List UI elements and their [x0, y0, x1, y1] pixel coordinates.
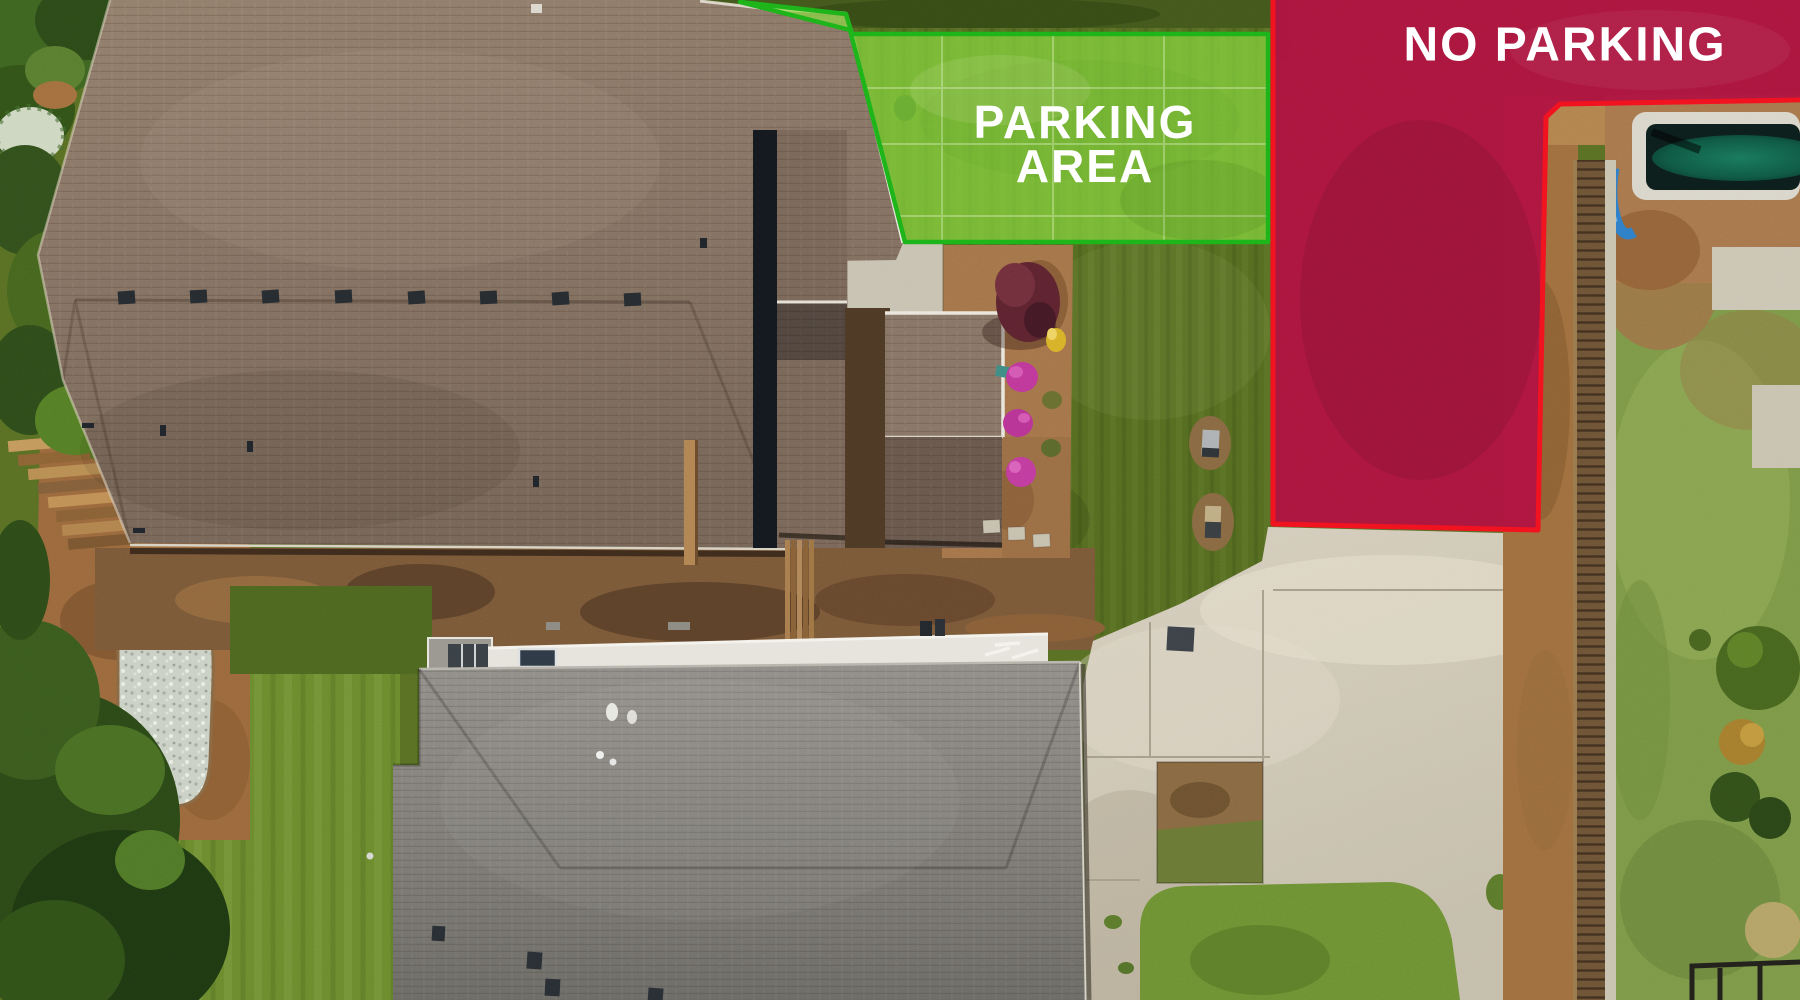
aerial-scene: PARKING AREA NO PARKING	[0, 0, 1800, 1000]
photo-grain-overlay	[0, 0, 1800, 1000]
aerial-photo-annotated: PARKING AREA NO PARKING	[0, 0, 1800, 1000]
